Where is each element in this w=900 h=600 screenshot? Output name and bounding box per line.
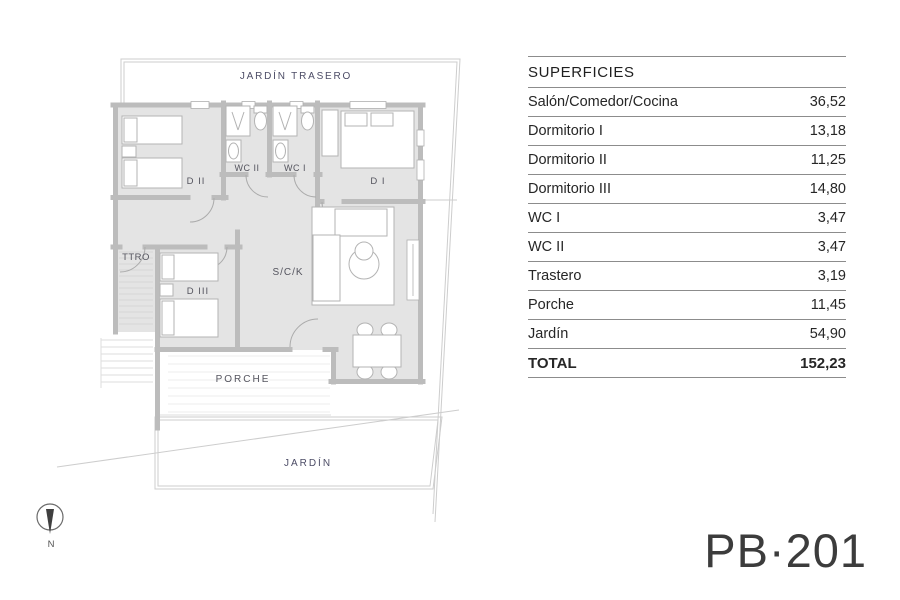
table-row: Dormitorio III 14,80 [528, 175, 846, 204]
row-value: 11,25 [811, 152, 846, 168]
areas-table: SUPERFICIES Salón/Comedor/Cocina 36,52 D… [528, 56, 846, 378]
row-label: Dormitorio II [528, 152, 615, 168]
row-label: Porche [528, 297, 582, 313]
row-label: Salón/Comedor/Cocina [528, 94, 686, 110]
label-living-kitchen: S/C/K [272, 267, 303, 278]
row-value: 3,19 [818, 268, 846, 284]
row-value: 14,80 [810, 181, 846, 197]
row-value: 36,52 [810, 94, 846, 110]
row-label: WC I [528, 210, 568, 226]
label-wc2: WC II [235, 163, 260, 173]
label-garden: JARDÍN [284, 456, 332, 469]
table-row: Jardín 54,90 [528, 320, 846, 349]
table-row: Trastero 3,19 [528, 262, 846, 291]
label-back-garden: JARDÍN TRASERO [240, 69, 352, 82]
label-porch: PORCHE [216, 374, 271, 385]
table-row: Salón/Comedor/Cocina 36,52 [528, 88, 846, 117]
plan-code: PB·201 [704, 526, 867, 575]
label-storage: TTRO [122, 252, 150, 263]
label-bedroom2: D II [187, 176, 206, 187]
table-row: WC II 3,47 [528, 233, 846, 262]
row-label: Jardín [528, 326, 576, 342]
row-label: Dormitorio III [528, 181, 619, 197]
label-wc1: WC I [284, 163, 306, 173]
row-label: Dormitorio I [528, 123, 611, 139]
floor-plan: JARDÍN TRASERO D II WC II WC I D I TTRO … [0, 0, 510, 600]
table-row: Porche 11,45 [528, 291, 846, 320]
areas-table-header: SUPERFICIES [528, 57, 846, 88]
table-row: Dormitorio II 11,25 [528, 146, 846, 175]
north-label: N [48, 539, 55, 550]
row-label: WC II [528, 239, 572, 255]
total-label: TOTAL [528, 355, 585, 372]
row-value: 3,47 [818, 239, 846, 255]
row-label: Trastero [528, 268, 589, 284]
label-bedroom3: D III [187, 286, 209, 297]
row-value: 13,18 [810, 123, 846, 139]
table-row: WC I 3,47 [528, 204, 846, 233]
row-value: 11,45 [811, 297, 846, 313]
row-value: 3,47 [818, 210, 846, 226]
compass: N [37, 504, 63, 550]
row-value: 54,90 [810, 326, 846, 342]
living-furniture [312, 207, 394, 305]
plan-sheet: JARDÍN TRASERO D II WC II WC I D I TTRO … [0, 0, 900, 600]
total-value: 152,23 [800, 355, 846, 372]
total-row: TOTAL 152,23 [528, 349, 846, 378]
table-row: Dormitorio I 13,18 [528, 117, 846, 146]
label-bedroom1: D I [370, 176, 385, 187]
